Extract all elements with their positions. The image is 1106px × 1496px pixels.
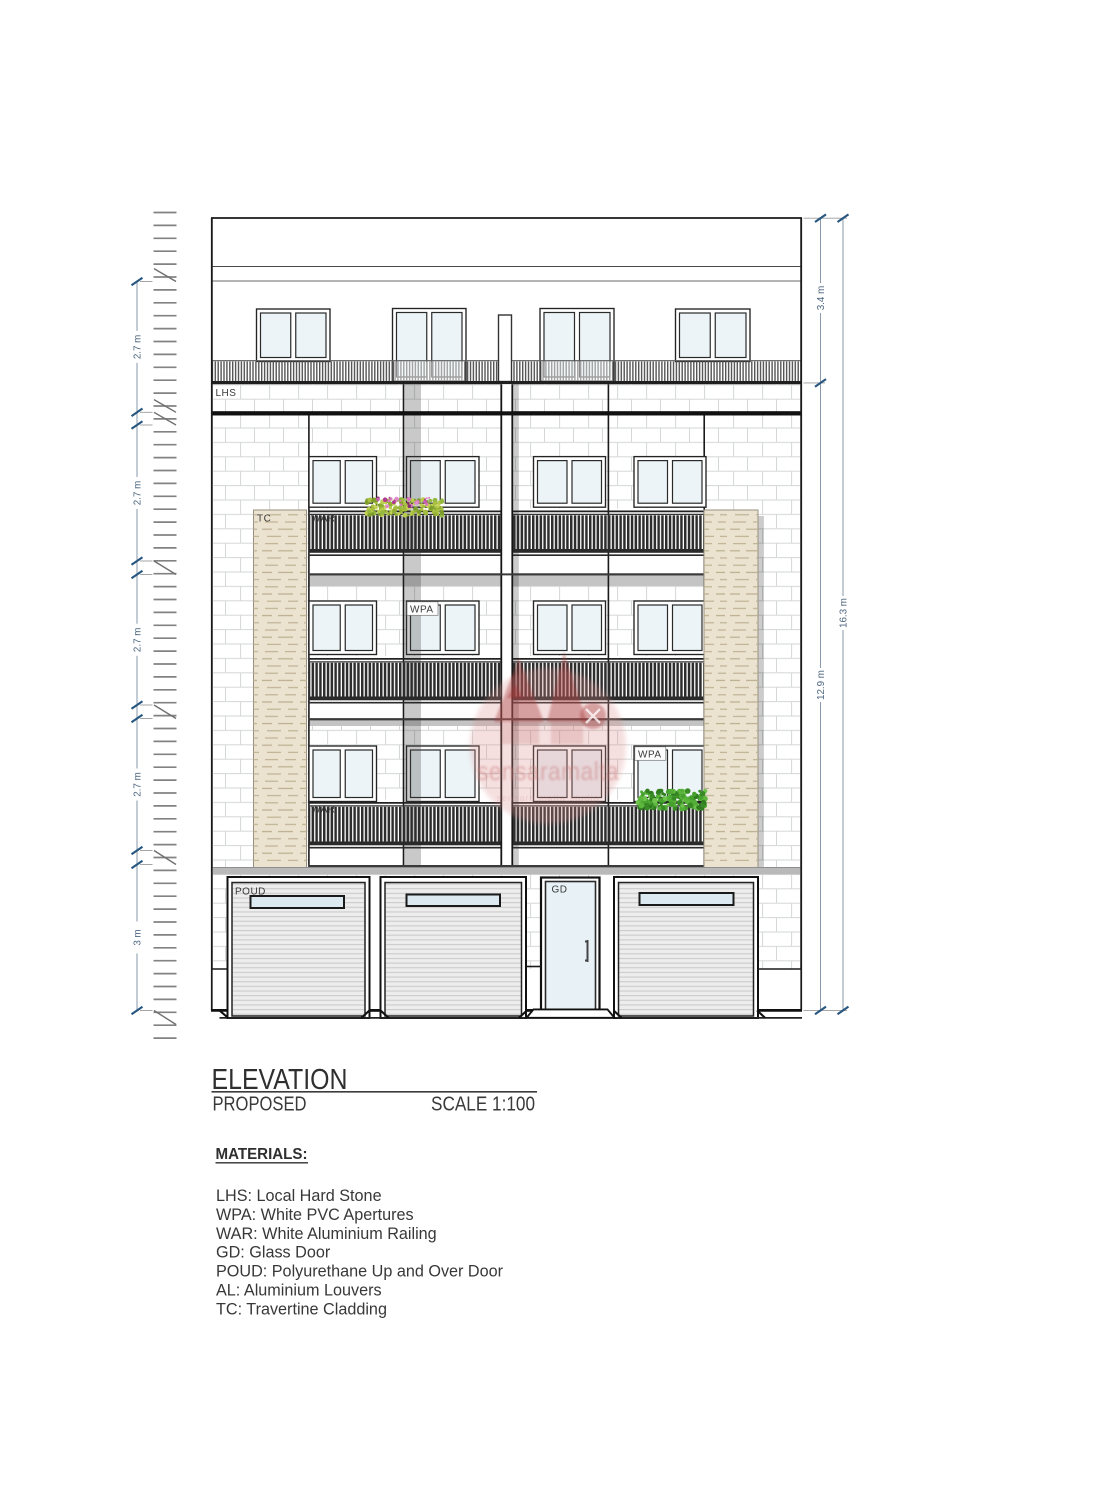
svg-text:WPA: WPA — [638, 750, 662, 761]
svg-text:MATERIALS:: MATERIALS: — [216, 1146, 308, 1163]
svg-text:LHS: Local Hard Stone: LHS: Local Hard Stone — [216, 1187, 382, 1205]
svg-text:LHS: LHS — [216, 388, 237, 399]
svg-text:3.4 m: 3.4 m — [816, 286, 827, 311]
svg-text:SCALE 1:100: SCALE 1:100 — [431, 1093, 535, 1115]
svg-text:GD: GD — [552, 885, 568, 896]
svg-text:WPA: WPA — [410, 605, 434, 616]
svg-text:16.3 m: 16.3 m — [839, 598, 850, 628]
svg-text:WAR: White Aluminium Railing: WAR: White Aluminium Railing — [216, 1225, 437, 1243]
svg-text:AL: Aluminium Louvers: AL: Aluminium Louvers — [216, 1282, 382, 1300]
svg-text:POUD: Polyurethane Up and Over: POUD: Polyurethane Up and Over Door — [216, 1263, 504, 1281]
svg-text:2.7 m: 2.7 m — [133, 335, 144, 360]
svg-text:2.7 m: 2.7 m — [133, 628, 144, 653]
svg-text:2.7 m: 2.7 m — [133, 772, 144, 797]
svg-text:TC: TC — [257, 514, 271, 525]
svg-text:PROPOSED: PROPOSED — [213, 1093, 307, 1115]
svg-text:12.9 m: 12.9 m — [816, 670, 827, 700]
svg-text:WPA: White PVC Apertures: WPA: White PVC Apertures — [216, 1206, 414, 1224]
svg-text:POUD: POUD — [235, 887, 266, 898]
svg-text:3 m: 3 m — [133, 929, 144, 945]
svg-text:GD: Glass Door: GD: Glass Door — [216, 1244, 331, 1262]
svg-text:TC: Travertine Cladding: TC: Travertine Cladding — [216, 1300, 387, 1318]
svg-text:sensara malta studio: sensara malta studio — [496, 793, 599, 803]
svg-text:2.7 m: 2.7 m — [133, 481, 144, 506]
svg-text:sensaramalta: sensaramalta — [477, 756, 619, 786]
